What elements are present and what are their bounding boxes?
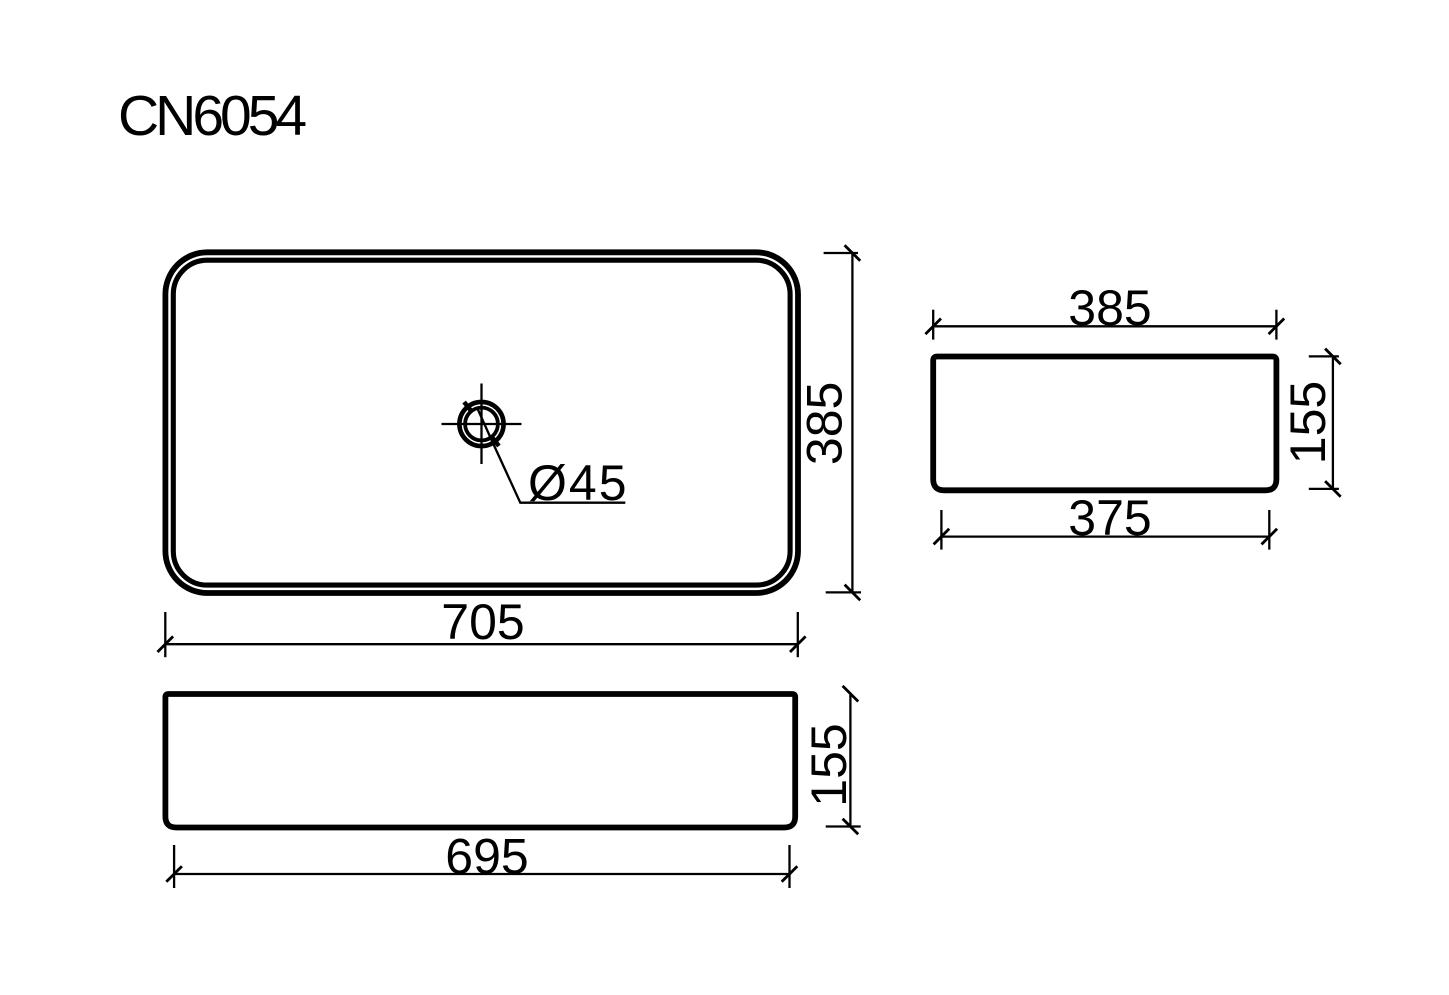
svg-text:CN6054: CN6054	[118, 84, 306, 148]
svg-text:385: 385	[797, 382, 853, 465]
svg-text:155: 155	[1280, 381, 1336, 464]
svg-text:385: 385	[1068, 280, 1151, 336]
svg-text:695: 695	[445, 829, 528, 885]
svg-text:155: 155	[801, 723, 857, 806]
svg-text:Ø45: Ø45	[528, 455, 629, 511]
svg-text:705: 705	[441, 594, 524, 650]
svg-text:375: 375	[1068, 490, 1151, 546]
